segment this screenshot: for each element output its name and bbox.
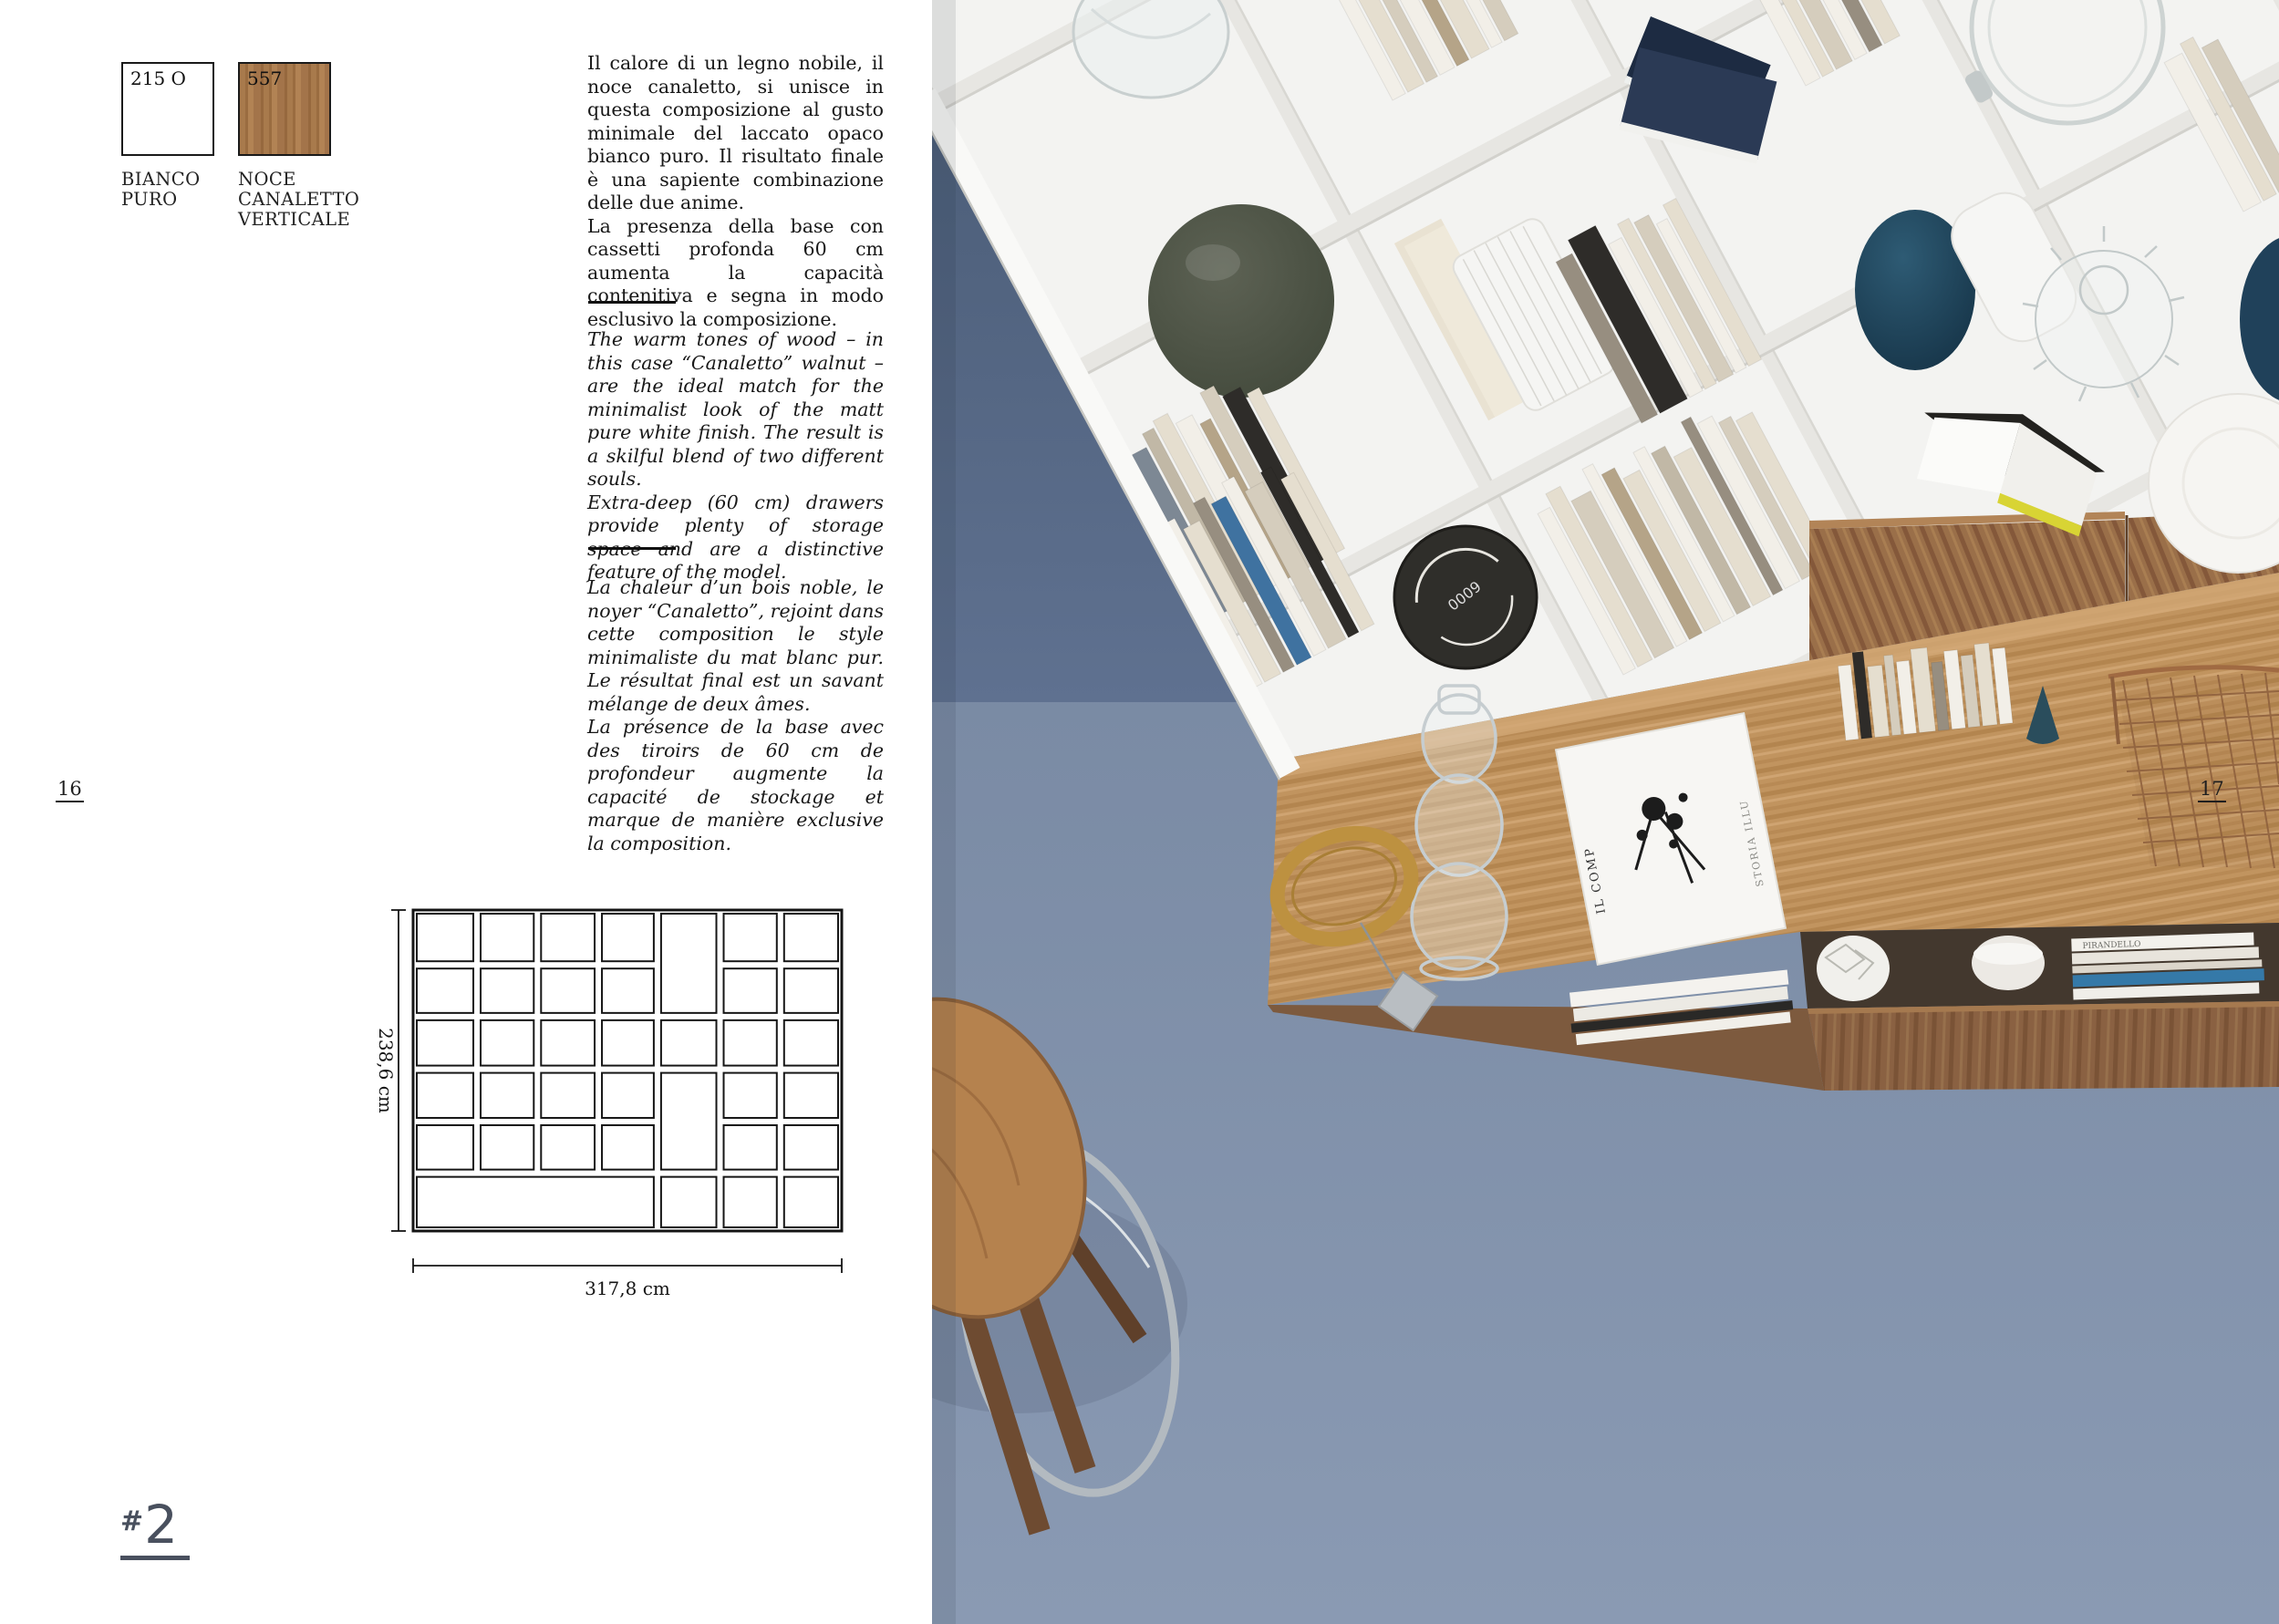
paragraph-italian: Il calore di un legno nobile, il noce ca… — [587, 52, 884, 331]
schematic-cell — [784, 1125, 838, 1170]
swatch-name-bianco: BIANCO PURO — [121, 170, 200, 210]
schematic-cell — [417, 914, 473, 961]
schematic-cell — [481, 968, 533, 1013]
shelving-schematic: 238,6 cm 317,8 cm — [363, 901, 892, 1311]
schematic-cell — [541, 914, 595, 961]
finish-swatch-bianco: 215 O — [121, 62, 214, 156]
paragraph-english: The warm tones of wood – in this case “C… — [587, 328, 884, 584]
schematic-cell — [417, 1073, 473, 1118]
drawer-front — [1808, 1001, 2279, 1091]
olive-vase — [1148, 204, 1334, 398]
page-gutter-shadow — [932, 0, 956, 1624]
schematic-cell — [602, 1020, 654, 1066]
schematic-cell — [602, 914, 654, 961]
page-number-right: 17 — [2198, 779, 2226, 802]
patterned-vase — [1817, 936, 1890, 1001]
schematic-cell — [784, 1020, 838, 1066]
catalog-spread: 215 O 557 BIANCO PURO NOCE CANALETTO VER… — [0, 0, 2279, 1624]
paragraph-french: La chaleur d’un bois noble, le noyer “Ca… — [587, 576, 884, 855]
schematic-cell — [541, 1125, 595, 1170]
divider-rule — [588, 547, 676, 550]
composition-number: #2 — [120, 1494, 190, 1560]
schematic-cell — [541, 1073, 595, 1118]
schematic-cell — [602, 1125, 654, 1170]
finish-swatch-noce: 557 — [238, 62, 331, 156]
schematic-cell — [784, 968, 838, 1013]
page-number-left: 16 — [56, 779, 84, 802]
book-stack: PIRANDELLO — [2071, 932, 2264, 999]
schematic-cell — [724, 1020, 777, 1066]
schematic-cell — [784, 1177, 838, 1227]
schematic-cell — [602, 968, 654, 1013]
schematic-cell — [661, 1073, 717, 1170]
schematic-cell — [724, 1125, 777, 1170]
schematic-cell — [602, 1073, 654, 1118]
schematic-cell — [661, 914, 717, 1013]
schematic-cell — [661, 1177, 717, 1227]
swatch-code: 557 — [247, 67, 282, 89]
schematic-cell — [417, 1177, 654, 1227]
schematic-cell — [661, 1020, 717, 1066]
width-dimension-line — [413, 1258, 842, 1273]
schematic-cell — [417, 1125, 473, 1170]
stacked-glass-vase — [1412, 686, 1507, 979]
art-book-leaning: IL COMP STORIA ILLU — [1556, 713, 1786, 965]
height-dimension-label: 238,6 cm — [375, 1028, 397, 1113]
composition-underline — [120, 1556, 190, 1560]
schematic-cell — [541, 968, 595, 1013]
schematic-cell — [481, 1073, 533, 1118]
schematic-cell — [481, 914, 533, 961]
schematic-cells — [417, 914, 838, 1227]
schematic-cell — [724, 1177, 777, 1227]
swatch-code: 215 O — [130, 67, 186, 89]
schematic-cell — [417, 1020, 473, 1066]
schematic-cell — [481, 1020, 533, 1066]
hash-glyph: # — [120, 1505, 144, 1537]
room-photo: PIRANDELLO — [932, 0, 2279, 1624]
schematic-cell — [724, 968, 777, 1013]
width-dimension-label: 317,8 cm — [585, 1277, 670, 1299]
schematic-cell — [724, 914, 777, 961]
divider-rule — [588, 301, 676, 304]
schematic-cell — [417, 968, 473, 1013]
schematic-cell — [481, 1125, 533, 1170]
swatch-name-noce: NOCE CANALETTO VERTICALE — [238, 170, 359, 231]
schematic-cell — [784, 914, 838, 961]
schematic-cell — [784, 1073, 838, 1118]
schematic-cell — [541, 1020, 595, 1066]
schematic-cell — [724, 1073, 777, 1118]
